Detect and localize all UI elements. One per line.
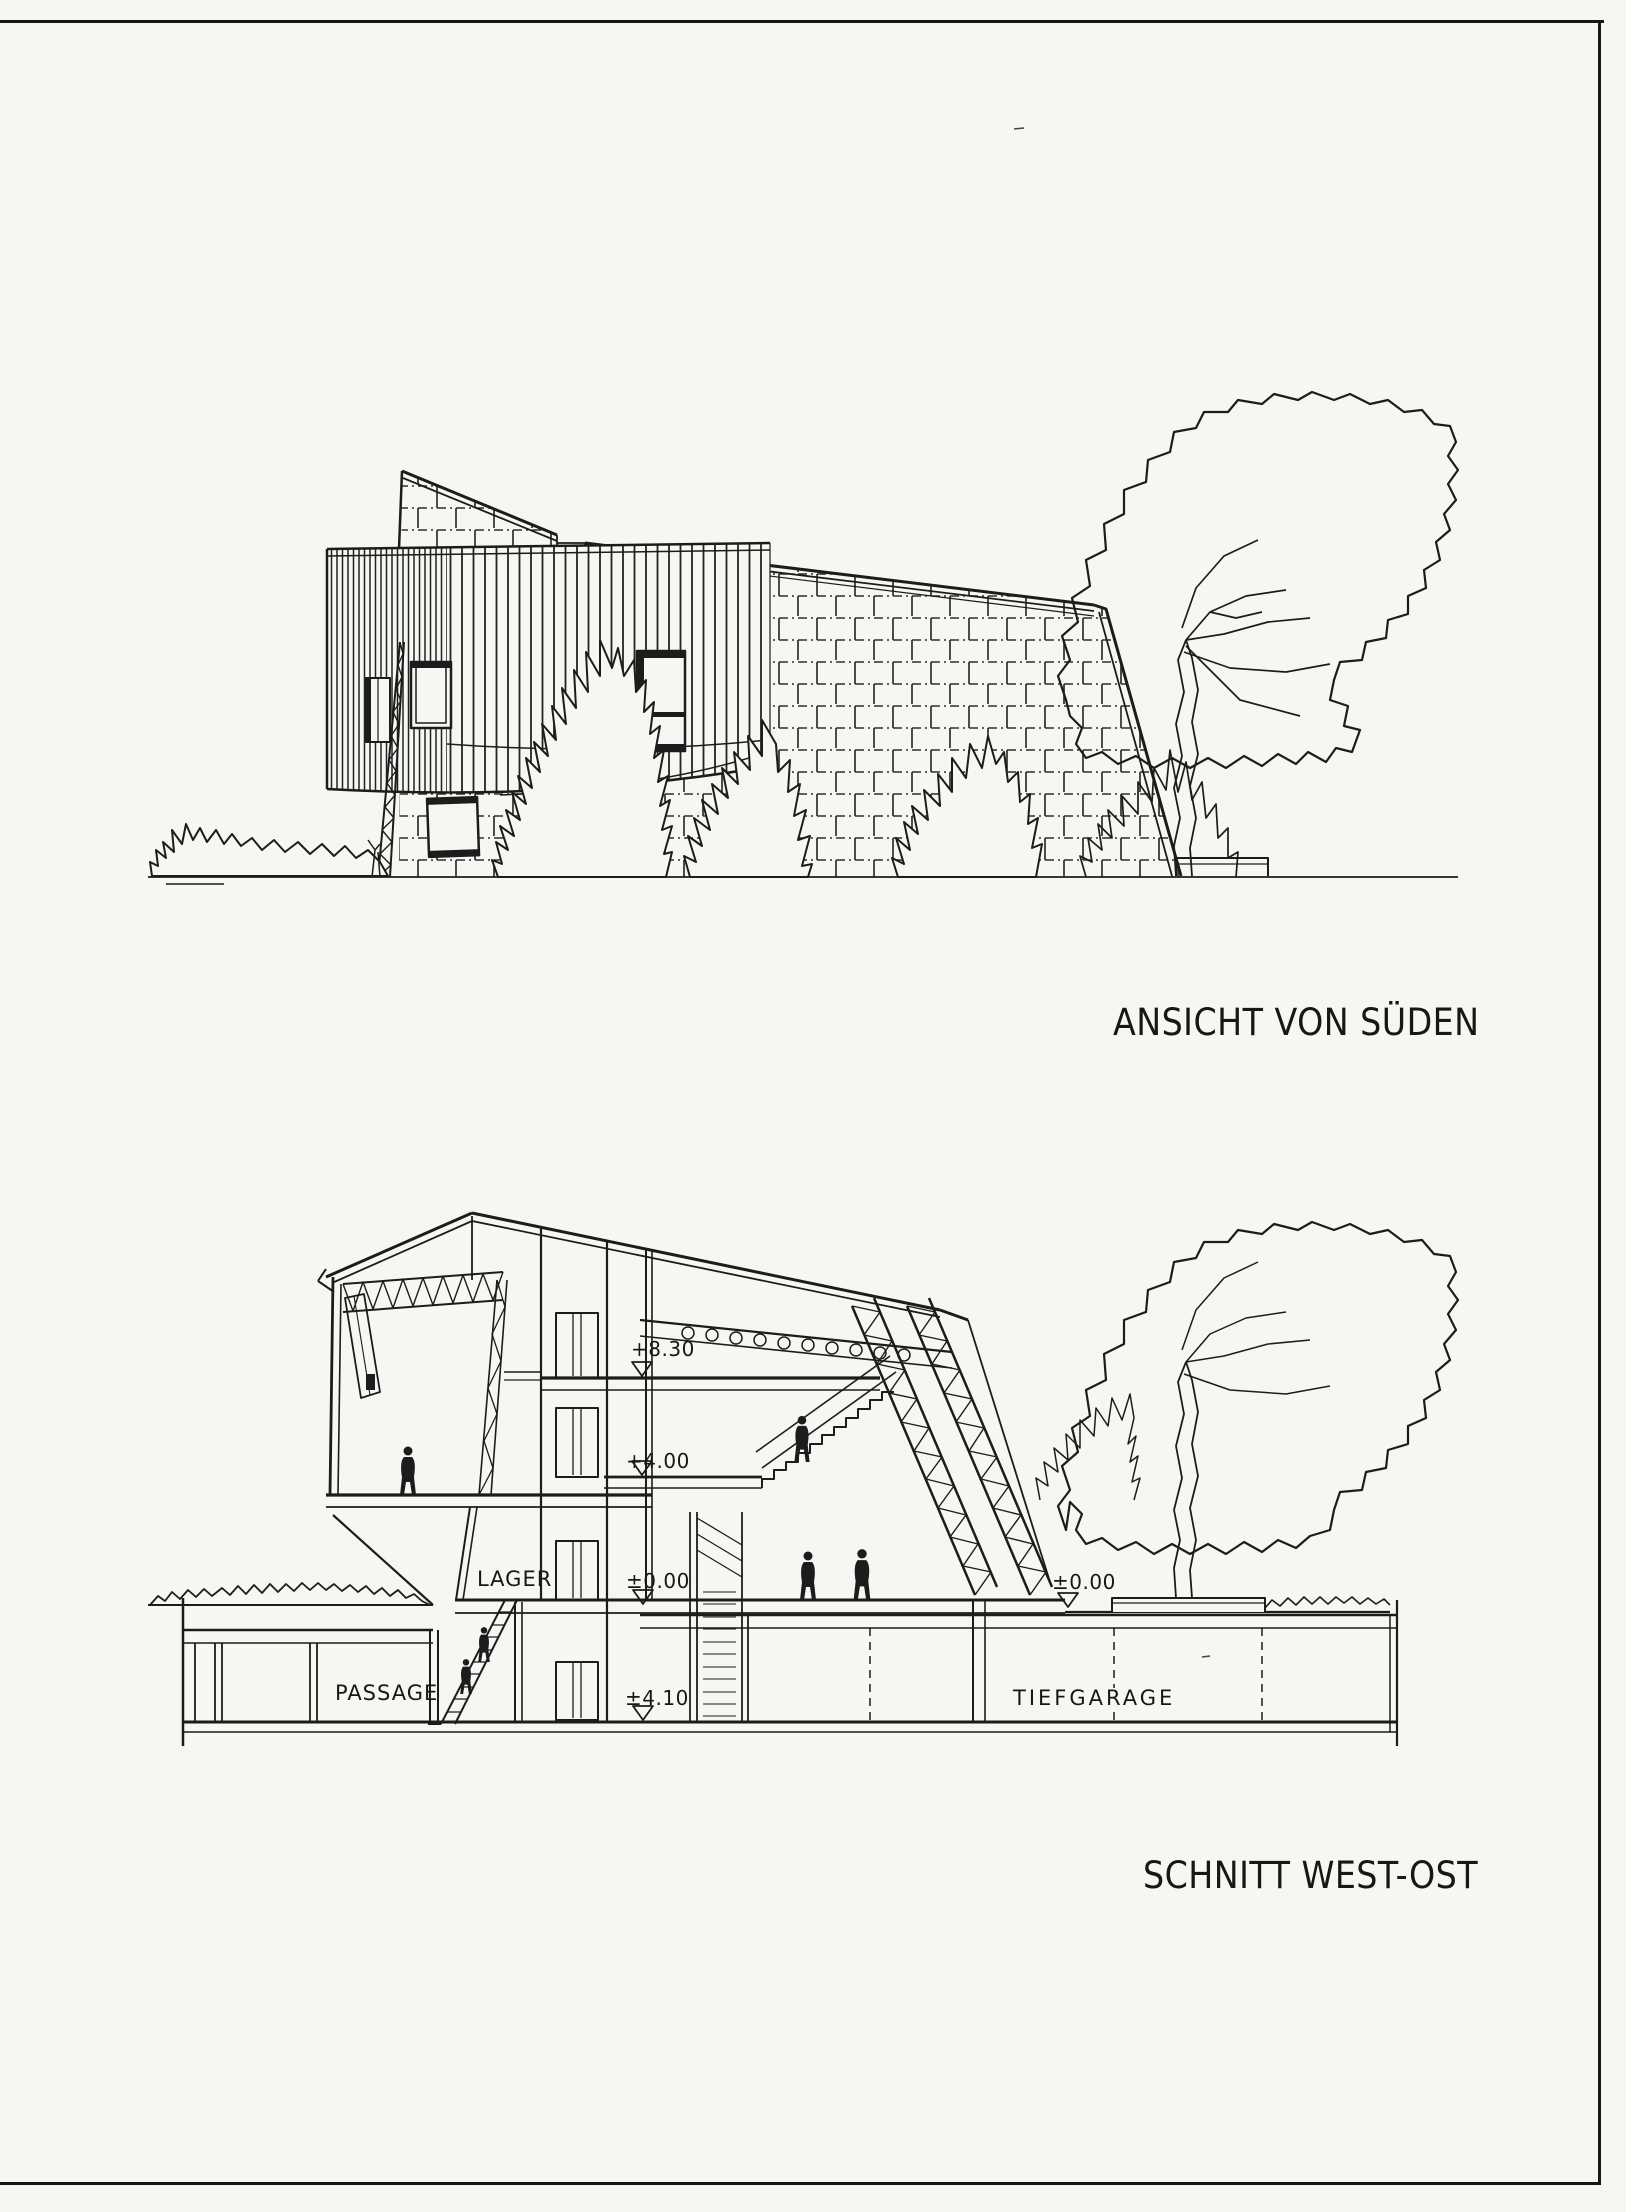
floor-slabs	[326, 1372, 1065, 1613]
figure	[800, 1552, 816, 1601]
section-caption: SCHNITT WEST-OST	[1143, 1857, 1478, 1894]
passage-columns	[215, 1643, 317, 1722]
elevation-caption: ANSICHT VON SÜDEN	[1113, 1004, 1480, 1041]
room-label-passage: PASSAGE	[335, 1683, 438, 1704]
stairs	[756, 1356, 896, 1488]
terrain	[148, 1583, 1390, 1612]
room-label-lager: LAGER	[477, 1569, 552, 1590]
tree-branches	[1182, 540, 1330, 716]
shaft-ladder	[703, 1592, 736, 1716]
planter	[1112, 1598, 1265, 1612]
rotunda-window-small	[366, 678, 390, 742]
mast-web	[479, 1280, 505, 1495]
tree-bench	[1176, 858, 1268, 876]
level-label-4-10: ±4.10	[625, 1688, 689, 1708]
elevation-drawing	[148, 128, 1458, 884]
section-drawing	[148, 1213, 1458, 1746]
room-label-tiefgarage: TIEFGARAGE	[1011, 1688, 1177, 1709]
truss-wall	[852, 1298, 1052, 1595]
bush-left	[150, 824, 388, 876]
level-marker-triangles	[632, 1362, 1078, 1720]
shaft-hatch	[697, 1518, 742, 1577]
level-label-0-00-right: ±0.00	[1052, 1572, 1116, 1592]
section-tree	[1036, 1222, 1458, 1598]
level-label-4-00: +4.00	[626, 1451, 690, 1471]
level-label-8-30: +8.30	[631, 1339, 695, 1359]
lager-slanted-wall	[456, 1507, 470, 1600]
berm	[333, 1515, 433, 1605]
elevator-shafts	[556, 1313, 598, 1720]
marker-8-30	[632, 1362, 652, 1376]
square-window	[427, 797, 479, 857]
scan-speck	[1202, 1656, 1210, 1657]
underground-levels	[183, 1598, 1397, 1746]
figure	[854, 1549, 871, 1600]
tree-trunk	[1174, 640, 1198, 876]
rotunda-window-large	[411, 662, 451, 728]
grass-right	[1265, 1597, 1390, 1608]
scan-speck	[1014, 128, 1024, 129]
drawing-sheet: ANSICHT VON SÜDEN SCHNITT WEST-OST LAGER…	[0, 0, 1626, 2212]
grass-left	[150, 1583, 430, 1605]
level-label-0-00-left: ±0.00	[626, 1571, 690, 1591]
escalator	[428, 1600, 522, 1724]
